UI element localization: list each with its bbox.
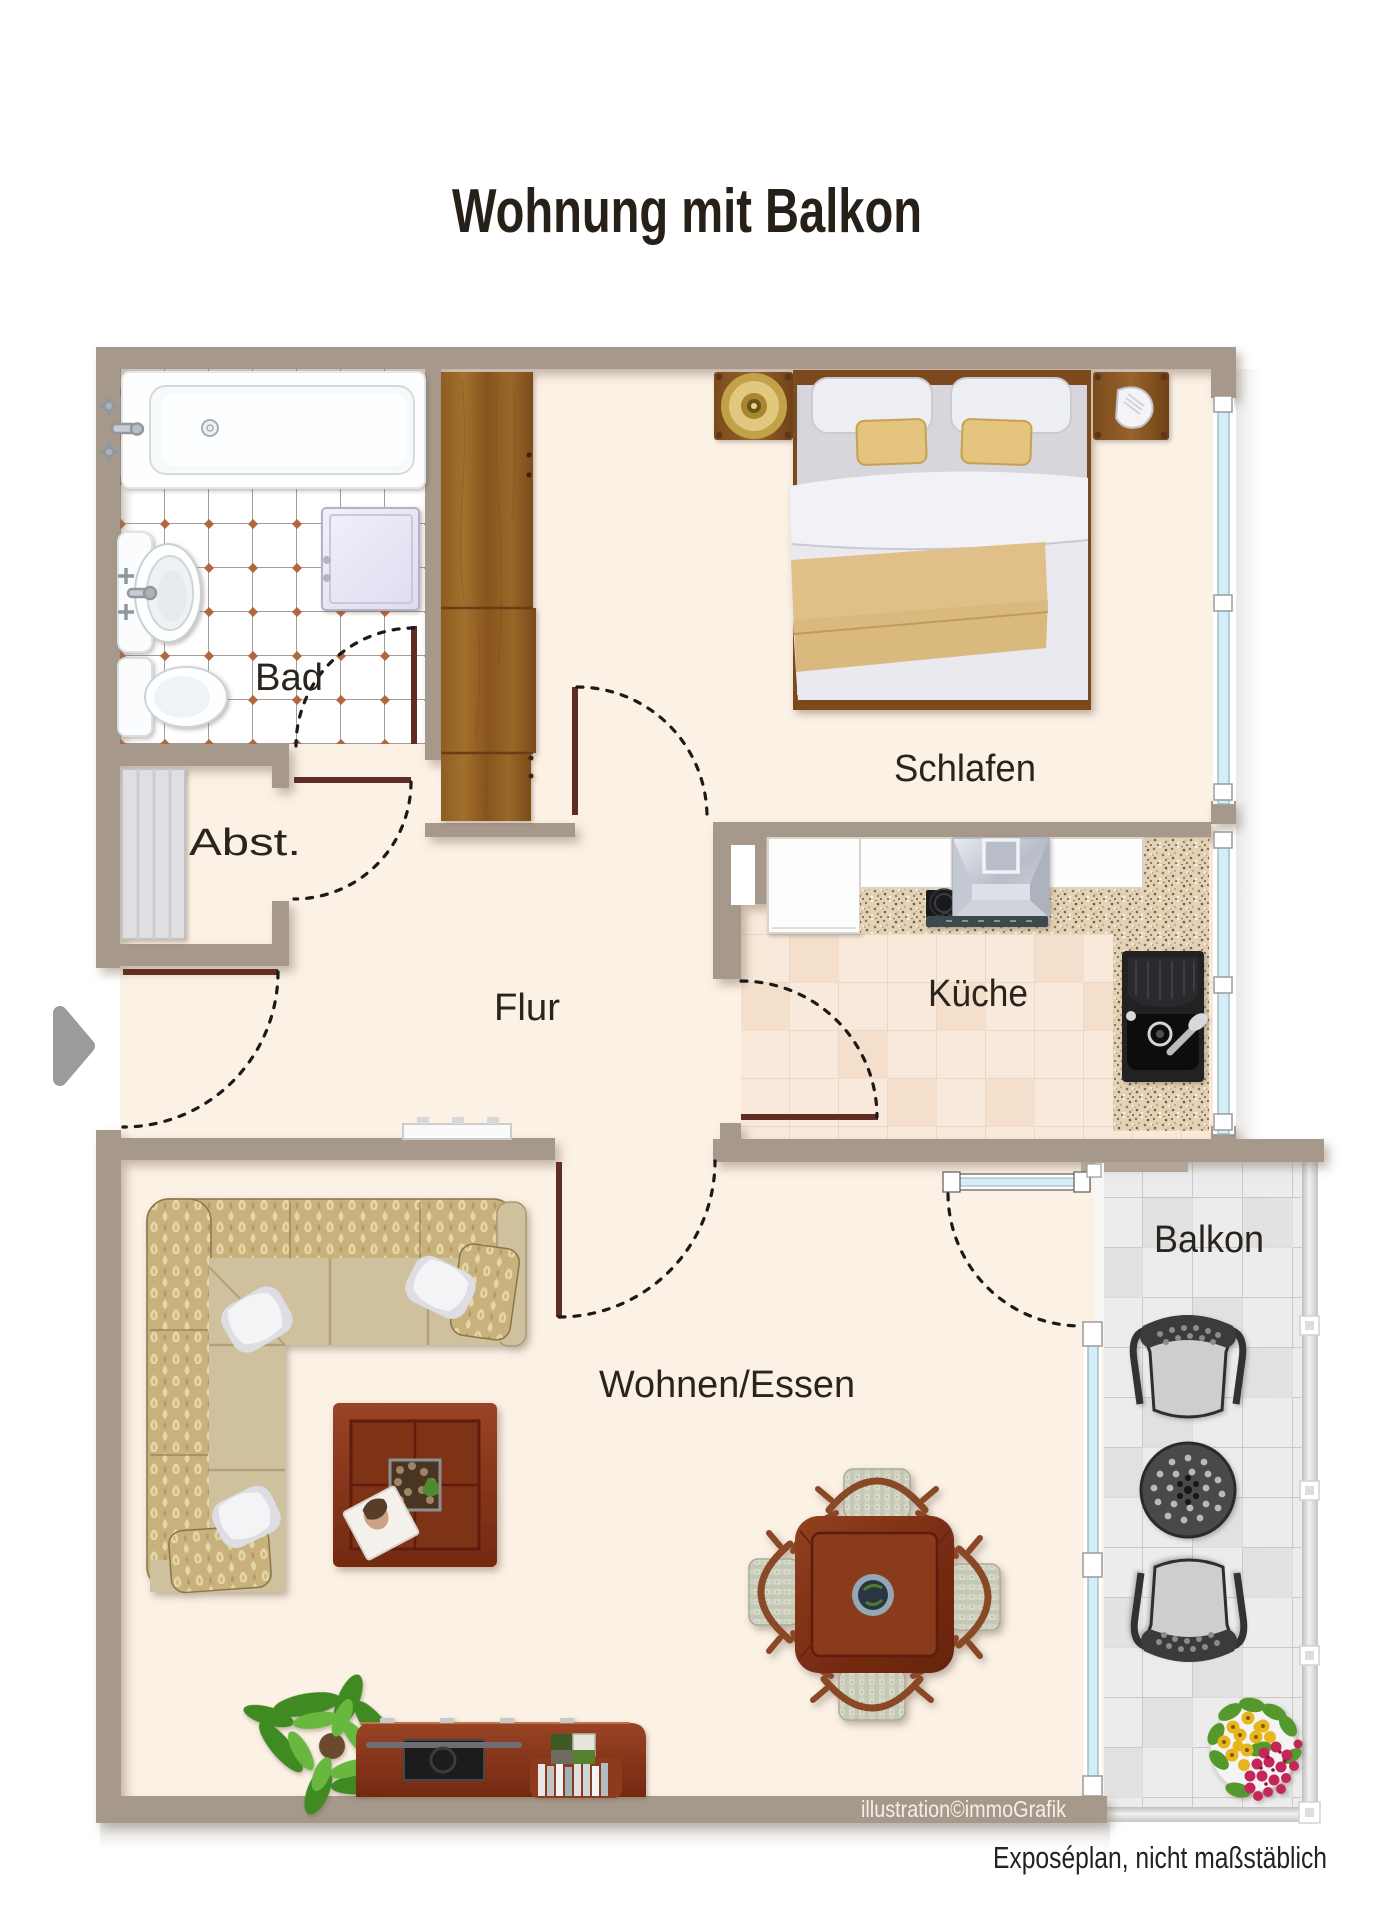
svg-text:Balkon: Balkon xyxy=(1154,1219,1264,1261)
svg-text:Exposéplan, nicht maßstäblich: Exposéplan, nicht maßstäblich xyxy=(993,1840,1327,1875)
svg-text:Schlafen: Schlafen xyxy=(894,748,1036,790)
svg-text:Wohnen/Essen: Wohnen/Essen xyxy=(599,1364,855,1406)
svg-text:Flur: Flur xyxy=(494,987,560,1029)
svg-text:illustration©immoGrafik: illustration©immoGrafik xyxy=(861,1796,1066,1822)
svg-text:Bad: Bad xyxy=(255,657,323,699)
svg-text:Wohnung mit Balkon: Wohnung mit Balkon xyxy=(452,177,922,246)
svg-text:Abst.: Abst. xyxy=(189,822,301,864)
svg-text:Küche: Küche xyxy=(928,973,1028,1015)
